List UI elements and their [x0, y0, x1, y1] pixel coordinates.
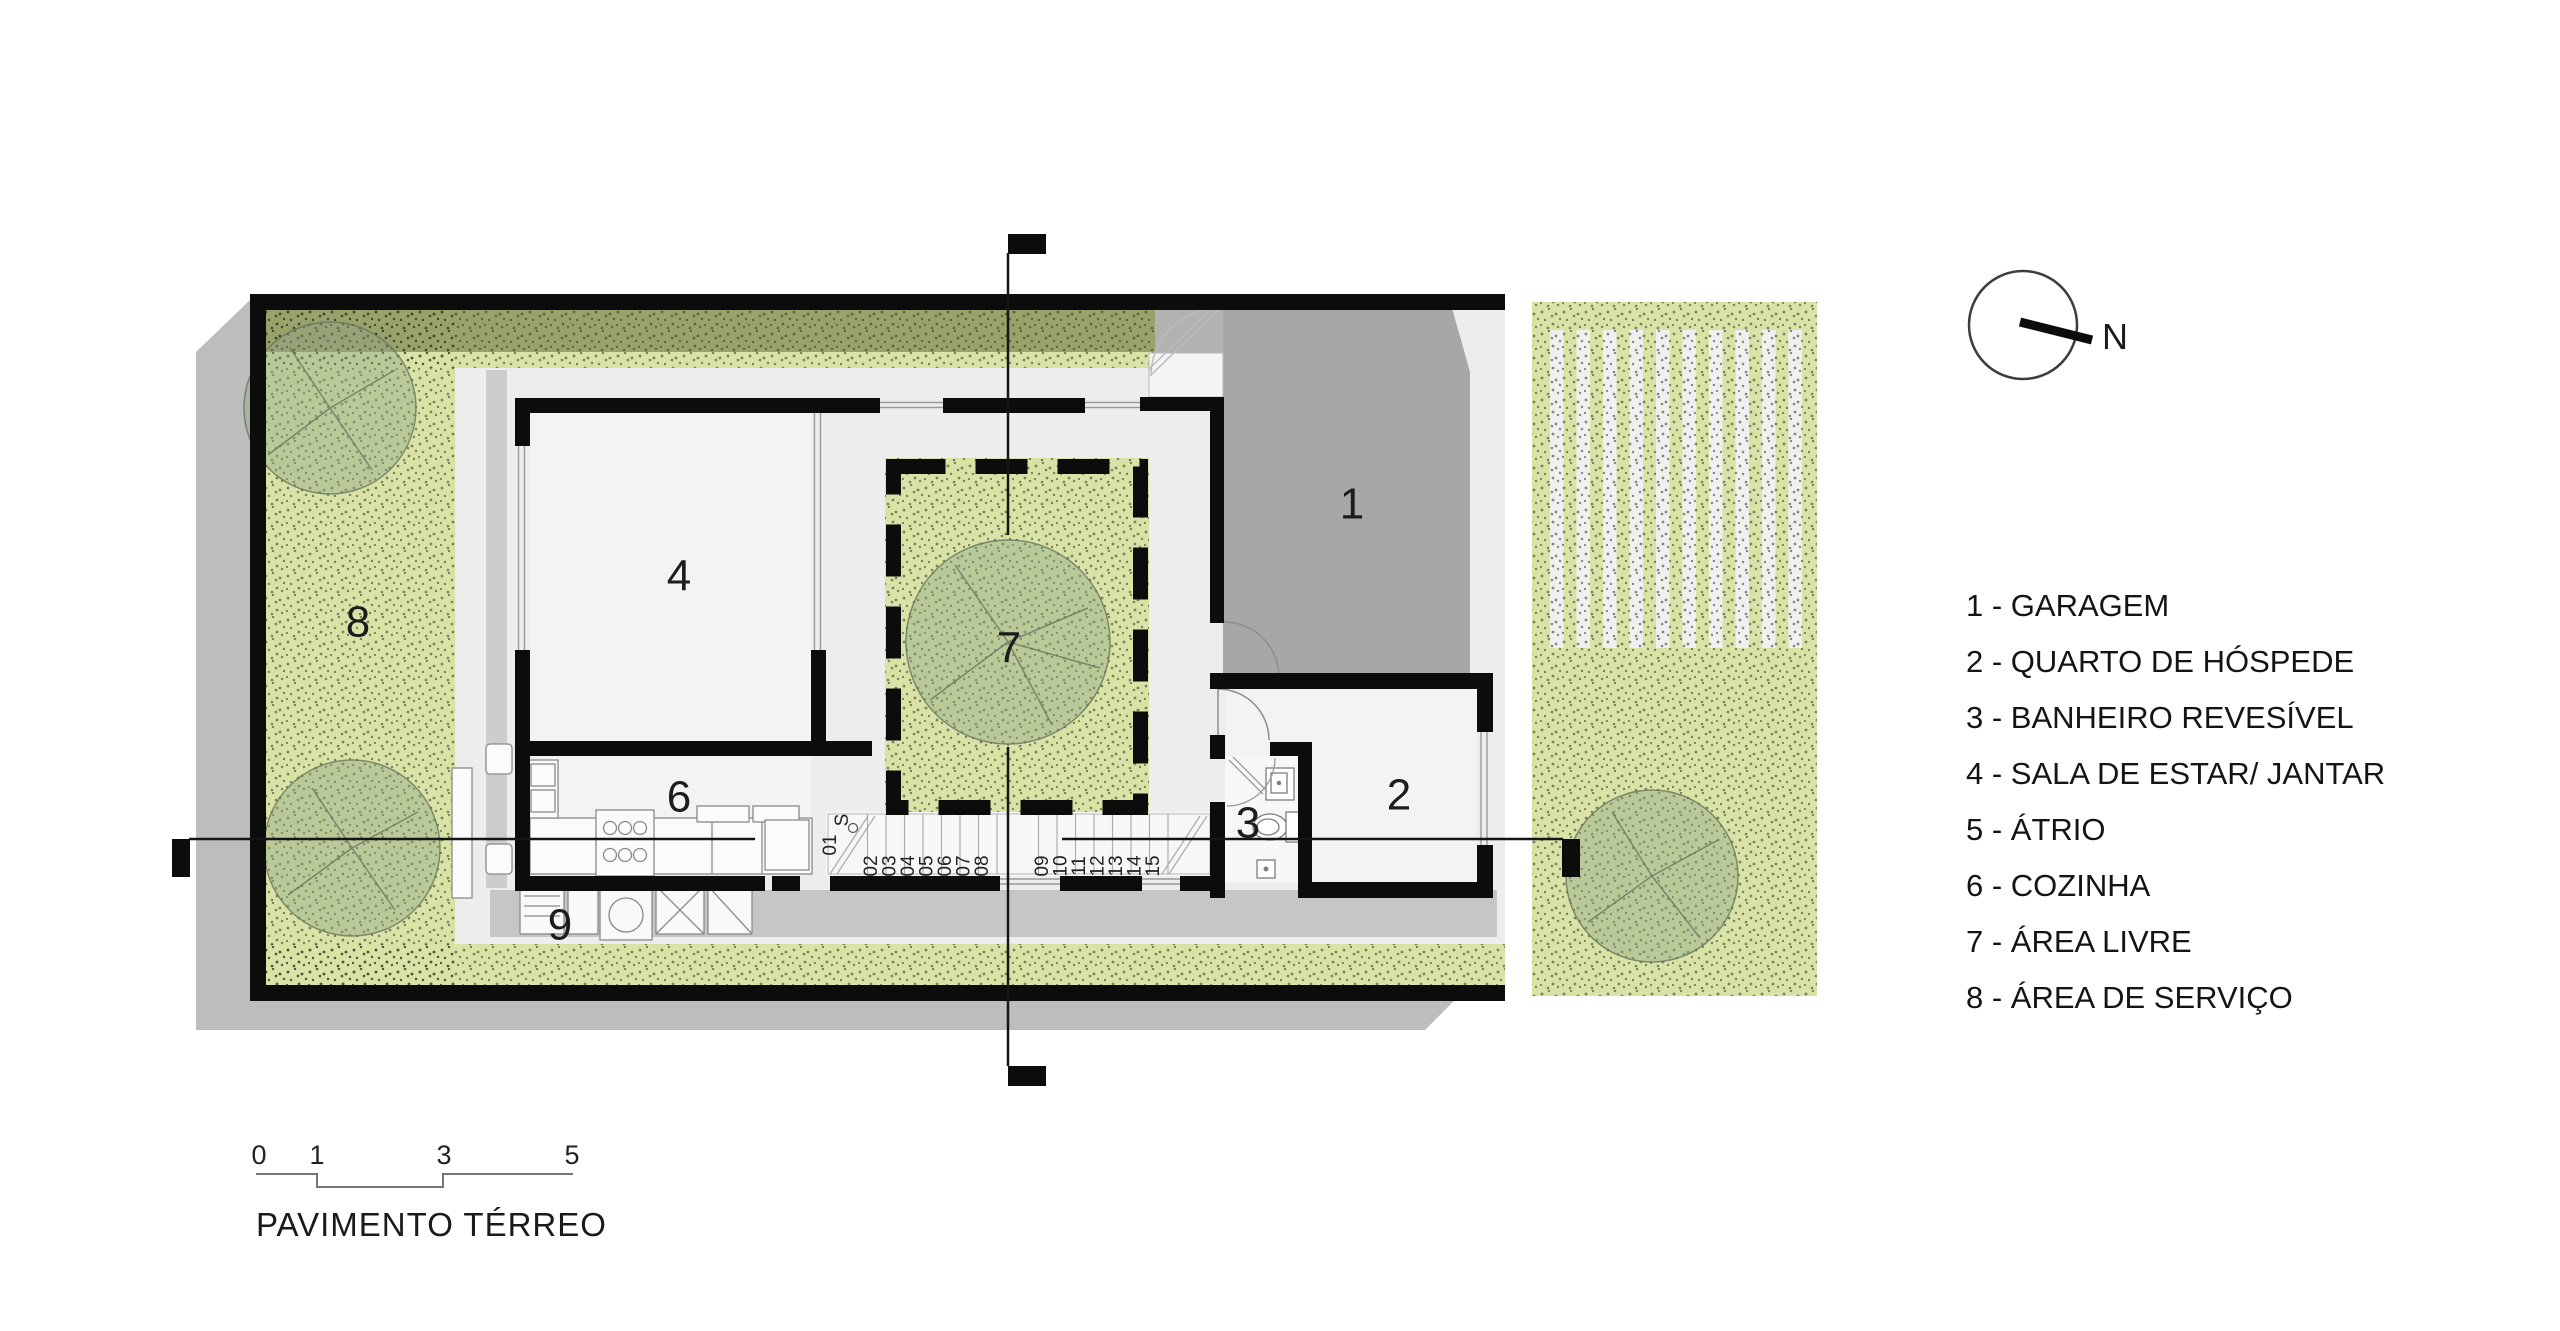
site-wall-south	[250, 985, 1505, 1001]
legend-item: 7 - ÁREA LIVRE	[1966, 914, 2385, 970]
tree-right-garden	[1566, 790, 1738, 962]
label-garage: 1	[1340, 480, 1364, 529]
west-wall-shadow	[486, 370, 507, 888]
legend-item: 1 - GARAGEM	[1966, 578, 2385, 634]
legend-item: 2 - QUARTO DE HÓSPEDE	[1966, 634, 2385, 690]
site-wall-north	[250, 294, 1505, 310]
service-sink-2	[486, 844, 512, 874]
scale-tick-1: 1	[309, 1140, 324, 1171]
north-arrow: N	[1969, 271, 2128, 379]
legend-item: 4 - SALA DE ESTAR/ JANTAR	[1966, 746, 2385, 802]
compass-needle	[2020, 322, 2092, 340]
legend-item: 6 - COZINHA	[1966, 858, 2385, 914]
label-bathroom: 3	[1236, 799, 1260, 848]
legend-item: 3 - BANHEIRO REVESÍVEL	[1966, 690, 2385, 746]
site-wall-west	[250, 294, 266, 1001]
scale-tick-0: 0	[251, 1140, 266, 1171]
section-marker-left	[172, 839, 190, 877]
page-title: PAVIMENTO TÉRREO	[256, 1206, 607, 1244]
garage-wall-south	[1210, 673, 1493, 689]
garage-wall-west	[1210, 397, 1224, 623]
stair-step-number: 08	[972, 855, 993, 876]
scale-tick-3: 3	[436, 1140, 451, 1171]
section-marker-bottom	[1008, 1066, 1046, 1086]
tree-bottom-left	[264, 760, 440, 936]
scale-bar	[256, 1174, 573, 1187]
toilet-tank	[1286, 812, 1299, 842]
section-marker-right	[1562, 839, 1580, 877]
legend: 1 - GARAGEM 2 - QUARTO DE HÓSPEDE 3 - BA…	[1966, 578, 2385, 1026]
stair-step-number: 15	[1143, 855, 1164, 876]
section-marker-top	[1008, 234, 1046, 254]
label-guest-room: 2	[1387, 771, 1411, 820]
scale-tick-5: 5	[564, 1140, 579, 1171]
label-courtyard: 7	[997, 624, 1021, 673]
stair-first-step-label: 01	[820, 834, 841, 855]
entry-landing	[1149, 353, 1223, 397]
label-service-area: 8	[346, 598, 370, 647]
label-kitchen: 6	[667, 773, 691, 822]
compass-label: N	[2102, 316, 2128, 357]
stair-start-label: S	[832, 814, 853, 827]
fridge	[765, 820, 809, 870]
service-bench	[452, 768, 472, 898]
legend-item: 8 - ÁREA DE SERVIÇO	[1966, 970, 2385, 1026]
stove	[596, 810, 654, 876]
label-living-dining: 4	[667, 552, 691, 601]
label-laundry: 9	[548, 901, 572, 950]
tree-top-left	[244, 322, 416, 494]
service-sink-1	[486, 744, 512, 774]
legend-item: 5 - ÁTRIO	[1966, 802, 2385, 858]
